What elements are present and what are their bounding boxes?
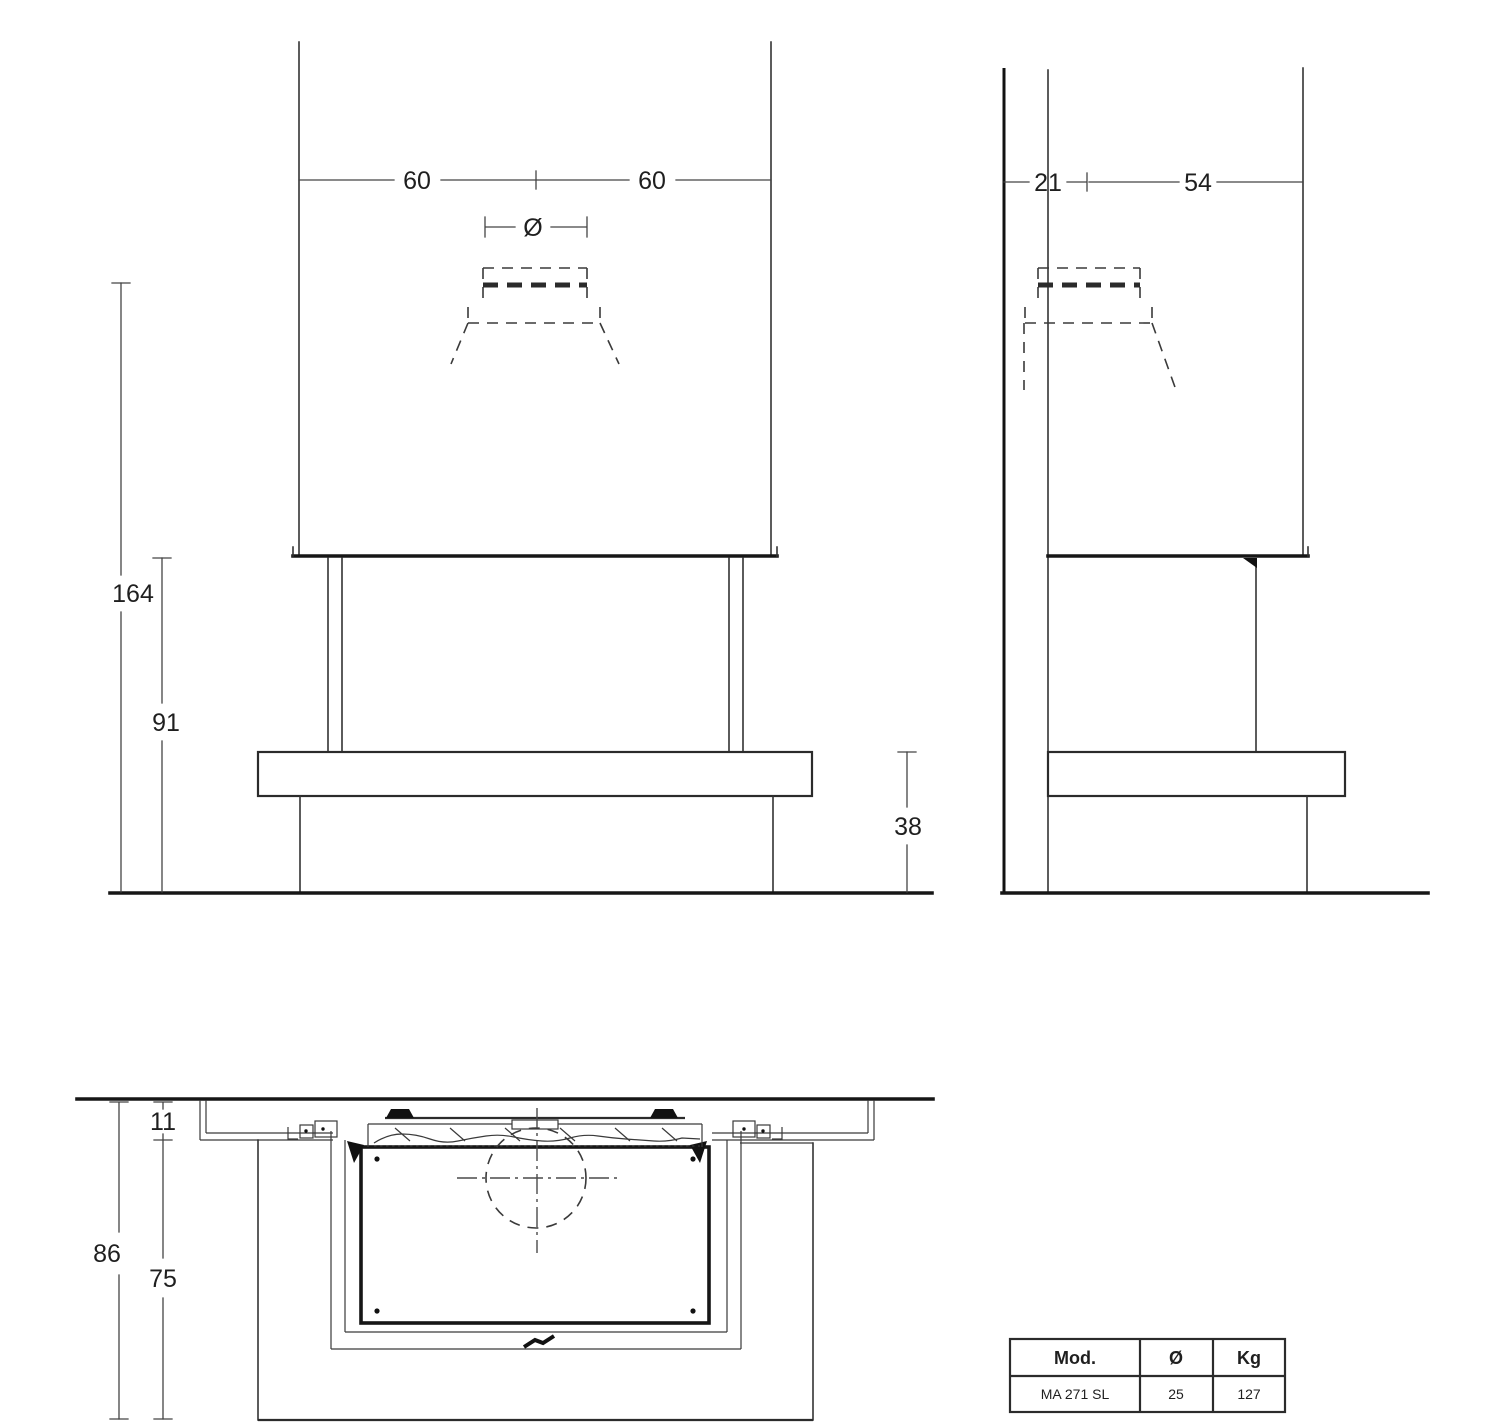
dim-opening-height-label: 91 <box>152 709 180 737</box>
bench-side <box>1048 752 1345 796</box>
spec-table-cell-model: MA 271 SL <box>1041 1386 1110 1402</box>
spec-table: Mod. Ø Kg MA 271 SL 25 127 <box>1010 1339 1285 1412</box>
spec-table-header-mod: Mod. <box>1054 1348 1096 1368</box>
diameter-symbol-label: Ø <box>523 214 542 242</box>
dim-recess: 11 <box>150 1102 176 1140</box>
dim-depth-total-label: 86 <box>93 1240 121 1268</box>
dim-flue-to-front-label: 54 <box>1184 169 1212 197</box>
bench-front <box>258 752 812 796</box>
spec-table-header-kg: Kg <box>1237 1348 1261 1368</box>
dim-width-right-label: 60 <box>638 167 666 195</box>
dim-width-left-label: 60 <box>403 167 431 195</box>
technical-drawing-page: 60 60 Ø 164 91 <box>0 0 1500 1427</box>
dim-wall-to-flue-label: 21 <box>1034 169 1062 197</box>
dim-total-height-label: 164 <box>112 580 154 608</box>
spec-table-cell-diameter: 25 <box>1168 1386 1184 1402</box>
page-background <box>0 0 1500 1427</box>
spec-table-cell-kg: 127 <box>1237 1386 1261 1402</box>
dim-recess-label: 11 <box>150 1108 176 1136</box>
dim-bench-height-label: 38 <box>894 813 922 841</box>
dim-depth-bench-label: 75 <box>149 1265 177 1293</box>
spec-table-header-diameter: Ø <box>1169 1348 1183 1368</box>
fireplace-dimension-drawing: 60 60 Ø 164 91 <box>0 0 1500 1427</box>
firebox-glass-box <box>361 1147 709 1323</box>
